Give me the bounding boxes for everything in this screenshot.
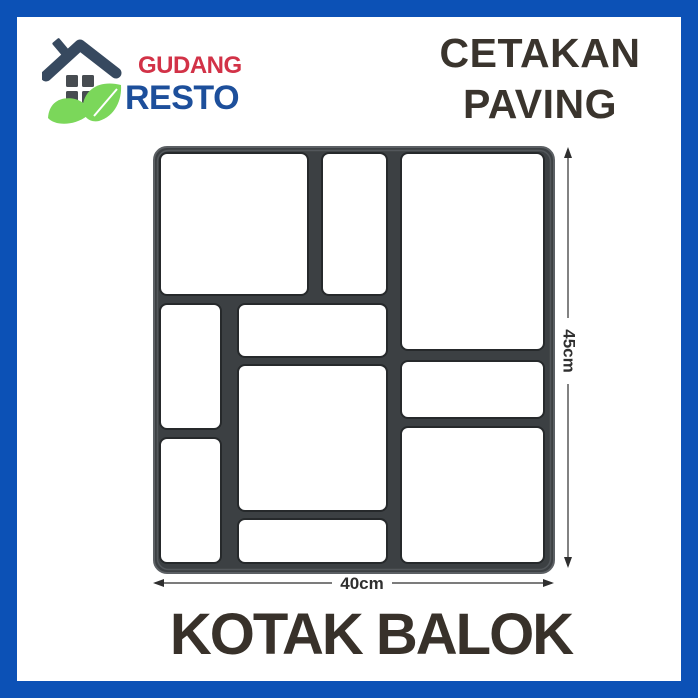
brand-name-top: GUDANG: [138, 52, 242, 80]
arrow-down-icon: [564, 557, 572, 568]
arrow-right-icon: [543, 579, 554, 587]
product-name: KOTAK BALOK: [140, 601, 602, 668]
mold-cell: [238, 304, 387, 357]
mold-cell: [401, 361, 544, 418]
mold-cell: [401, 427, 544, 563]
mold-cell: [401, 153, 544, 350]
roof: [46, 45, 116, 76]
brand-name-bottom: RESTO: [125, 79, 239, 118]
mold-cell: [160, 304, 221, 429]
mold-cell: [160, 438, 221, 563]
title-line-1: CETAKAN: [415, 28, 665, 79]
mold-cell: [322, 153, 387, 295]
product-image: GUDANG RESTO CETAKAN PAVING 45cm 40cm KO…: [0, 0, 698, 698]
leaf-icon: [48, 84, 121, 124]
arrow-up-icon: [564, 147, 572, 158]
width-dimension-label: 40cm: [340, 574, 383, 593]
mold-cell: [160, 153, 308, 295]
mold-diagram: 45cm 40cm: [140, 135, 600, 600]
mold-cell: [238, 519, 387, 563]
mold-cell: [238, 365, 387, 511]
brand-logo-house-icon: [42, 36, 122, 124]
height-dimension-label: 45cm: [560, 329, 579, 372]
page-title: CETAKAN PAVING: [415, 28, 665, 130]
title-line-2: PAVING: [415, 79, 665, 130]
leaf-right: [83, 84, 121, 122]
leaf-left: [48, 98, 88, 124]
arrow-left-icon: [153, 579, 164, 587]
